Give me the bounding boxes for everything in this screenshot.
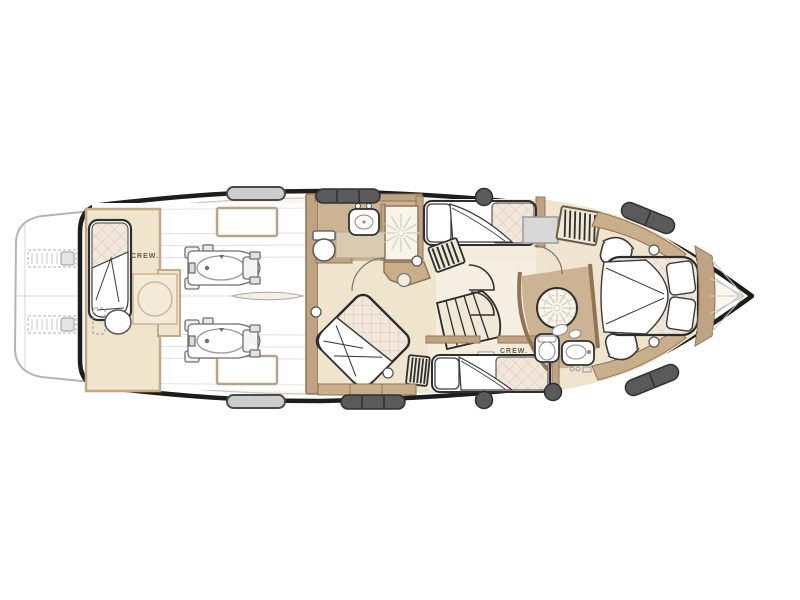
aft-crew-label: CREW. [131, 253, 159, 260]
bedside-light-right [383, 368, 393, 378]
keel-skeg [232, 292, 303, 300]
aft-crew-bed [89, 220, 131, 320]
tv-cabinet [523, 217, 558, 243]
round-shower [537, 288, 577, 328]
vip-pillow-bottom [666, 296, 696, 331]
aft-locker-starboard [217, 356, 277, 384]
starboard-crew-label: CREW. [500, 348, 528, 355]
porthole-bottom [476, 392, 493, 409]
bathroom-toilet [313, 231, 335, 261]
bow-toilet [535, 334, 559, 362]
crew-bed [432, 355, 550, 392]
luggage-rack [406, 355, 430, 386]
vip-light-port [649, 245, 659, 255]
engine-room-bulkhead [306, 194, 318, 394]
porthole-top [476, 189, 493, 206]
aft-locker-port [217, 208, 277, 236]
bedside-light-left [311, 307, 321, 317]
vip-light-starboard [649, 337, 659, 347]
hatch-triple-top [316, 189, 380, 203]
vip-bed [601, 257, 698, 335]
porthole-bottom-fwd [545, 384, 562, 401]
guest-bed [424, 201, 536, 245]
hatch-triple-bottom [341, 395, 405, 409]
stool [398, 274, 411, 287]
hatch-light-top [227, 187, 285, 200]
shower [382, 206, 420, 260]
yacht-floor-plan: CREW. [0, 0, 800, 600]
hatch-light-bottom [227, 395, 285, 408]
master-wardrobe [318, 384, 416, 395]
vip-pillow-top [666, 260, 696, 295]
floor-plan-canvas: CREW. [0, 0, 800, 600]
